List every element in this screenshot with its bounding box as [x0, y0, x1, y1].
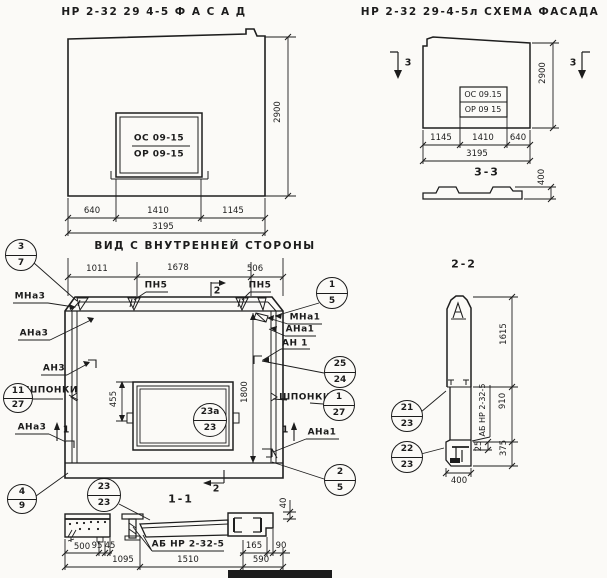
dim-1145-scheme: 1145 [430, 134, 452, 143]
label-abnr-2-32-5-vert: АБ НР 2-32-5 [479, 383, 487, 436]
dim-1510: 1510 [177, 556, 199, 565]
label-ana3: АНа3 [20, 330, 49, 339]
label-abnr-2-32-5: АБ НР 2-32-5 [152, 541, 225, 550]
section-2-flag-top: 2 [214, 286, 221, 296]
balloon-bottom-number: 9 [8, 500, 36, 514]
hatch-mark [258, 298, 266, 310]
dim-165: 165 [246, 542, 262, 551]
marker-balloon-1-27: 1 27 [323, 389, 355, 421]
facade-window [116, 113, 202, 177]
balloon-top-number: 2 [325, 465, 355, 481]
dim-590: 590 [253, 556, 269, 565]
dim-375: 375 [500, 440, 509, 456]
facade-window-mark-top: ОС 09-15 [134, 135, 184, 144]
marker-balloon-22-23: 22 23 [391, 441, 423, 473]
dim-506: 506 [247, 265, 263, 274]
section-3-marks [390, 52, 590, 71]
section-2-2-title: 2-2 [451, 259, 477, 270]
balloon-bottom-number: 5 [317, 294, 347, 309]
label-ana3-bottom: АНа3 [18, 424, 47, 433]
dim-910: 910 [499, 393, 508, 409]
label-ana1-bottom: АНа1 [308, 429, 337, 438]
dim-1410-scheme: 1410 [472, 134, 494, 143]
marker-balloon-4-9: 4 9 [7, 484, 37, 514]
balloon-top-number: 23а [194, 404, 226, 421]
dim-1410: 1410 [147, 207, 169, 216]
balloon-bottom-number: 24 [325, 373, 355, 388]
section-3-3-title: 3-3 [474, 167, 500, 178]
balloon-top-number: 1 [317, 278, 347, 294]
dim-640-scheme: 640 [510, 134, 526, 143]
hatch-mark [77, 298, 88, 310]
section-1-1-title: 1-1 [168, 494, 194, 505]
dim-2900-facade: 2900 [274, 101, 283, 123]
label-an1: АН 1 [282, 340, 308, 349]
dim-2900-scheme: 2900 [539, 62, 548, 84]
balloon-top-number: 11 [4, 384, 32, 399]
marker-balloon-3-7: 3 7 [5, 239, 37, 271]
section-1-flag-right: 1 [282, 425, 289, 435]
facade-window-mark-bottom: ОР 09-15 [134, 151, 184, 160]
rebar-dots [69, 521, 106, 530]
marker-balloon-23-23: 23 23 [87, 478, 121, 512]
inner-view-title: ВИД С ВНУТРЕННЕЙ СТОРОНЫ [94, 241, 315, 252]
label-an3: АН3 [43, 365, 65, 374]
scheme-window-mark-bottom: ОР 09 15 [465, 106, 502, 114]
balloon-bottom-number: 23 [392, 458, 422, 473]
label-shponki-left: ШПОНКИ [26, 387, 78, 396]
leader-lines [13, 263, 339, 496]
marker-balloon-1-5: 1 5 [316, 277, 348, 309]
dim-1145: 1145 [222, 207, 244, 216]
balloon-top-number: 25 [325, 357, 355, 373]
marker-balloon-23a-23: 23а 23 [193, 403, 227, 437]
dim-1615: 1615 [500, 323, 509, 345]
label-mna1: МНа1 [290, 314, 321, 323]
facade-view [68, 29, 296, 236]
balloon-top-number: 3 [6, 240, 36, 256]
dim-40: 40 [280, 498, 289, 509]
balloon-bottom-number: 23 [88, 496, 120, 512]
cropped-stamp-edge [228, 570, 332, 578]
facade-title: НР 2-32 29 4-5 Ф А С А Д [61, 7, 246, 18]
dim-3195-scheme: 3195 [466, 150, 488, 159]
scheme-title: НР 2-32 29-4-5л СХЕМА ФАСАДА [361, 7, 599, 18]
dim-25: 25 [475, 441, 484, 452]
label-pn5-right: ПН5 [249, 282, 272, 291]
dim-400-section22: 400 [451, 477, 467, 486]
dim-640: 640 [84, 207, 100, 216]
drawing-sheet: НР 2-32 29 4-5 Ф А С А Д ОС 09-15 ОР 09-… [0, 0, 607, 578]
balloon-bottom-number: 23 [194, 421, 226, 437]
balloon-top-number: 23 [88, 479, 120, 496]
dim-1095: 1095 [112, 556, 134, 565]
dim-90: 90 [276, 542, 287, 551]
dim-45: 45 [105, 542, 116, 551]
balloon-bottom-number: 5 [325, 481, 355, 496]
dim-455: 455 [110, 391, 119, 407]
marker-balloon-21-23: 21 23 [391, 400, 423, 432]
lifting-loop [451, 303, 466, 319]
dim-1011: 1011 [86, 265, 108, 274]
balloon-top-number: 4 [8, 485, 36, 500]
label-ana1: АНа1 [286, 326, 315, 335]
balloon-bottom-number: 23 [392, 417, 422, 432]
balloon-bottom-number: 27 [4, 399, 32, 413]
section-3-mark-left: 3 [405, 58, 412, 68]
label-mna3: МНа3 [15, 293, 46, 302]
dim-400-scheme: 400 [538, 169, 547, 185]
dim-500: 500 [74, 543, 90, 552]
balloon-top-number: 22 [392, 442, 422, 458]
section-2-flag-bottom: 2 [213, 484, 220, 494]
dim-3195-facade: 3195 [152, 223, 174, 232]
balloon-bottom-number: 7 [6, 256, 36, 271]
label-pn5-left: ПН5 [145, 282, 168, 291]
balloon-bottom-number: 27 [324, 406, 354, 421]
balloon-top-number: 21 [392, 401, 422, 417]
dim-1678: 1678 [167, 264, 189, 273]
dim-95: 95 [92, 542, 103, 551]
section-1-flag-left: 1 [63, 425, 70, 435]
marker-balloon-25-24: 25 24 [324, 356, 356, 388]
marker-balloon-2-5: 2 5 [324, 464, 356, 496]
scheme-window-mark-top: ОС 09.15 [464, 91, 501, 99]
dim-1800: 1800 [241, 381, 250, 403]
section-3-3-profile [423, 187, 522, 199]
balloon-top-number: 1 [324, 390, 354, 406]
section-3-mark-right: 3 [570, 58, 577, 68]
marker-balloon-11-27: 11 27 [3, 383, 33, 413]
inner-view [13, 258, 339, 496]
leader-lines [421, 391, 446, 454]
